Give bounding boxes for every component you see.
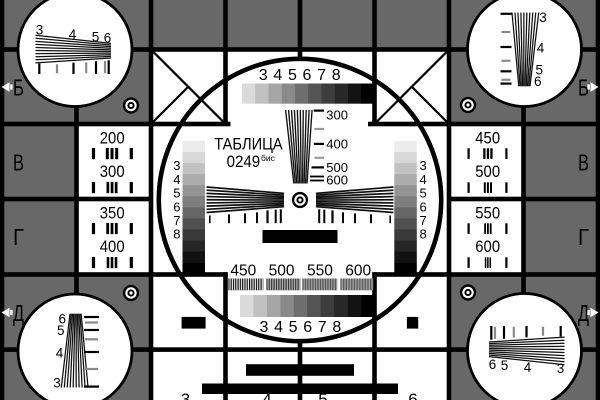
svg-text:550: 550 (475, 204, 500, 222)
svg-text:3: 3 (539, 10, 547, 25)
svg-text:6: 6 (303, 319, 312, 336)
svg-text:4: 4 (524, 360, 532, 375)
svg-text:3: 3 (557, 361, 565, 376)
svg-text:500: 500 (475, 163, 500, 181)
svg-text:3: 3 (181, 390, 190, 400)
svg-text:8: 8 (420, 227, 427, 242)
svg-text:350: 350 (100, 204, 125, 222)
svg-text:6: 6 (489, 357, 497, 372)
svg-text:7: 7 (317, 67, 326, 84)
svg-text:В: В (578, 149, 589, 175)
svg-text:4: 4 (273, 67, 282, 84)
svg-text:5: 5 (288, 67, 297, 84)
svg-text:450: 450 (230, 262, 256, 279)
svg-text:Д: Д (13, 300, 24, 326)
svg-text:бис: бис (261, 153, 276, 163)
svg-text:Б: Б (13, 74, 24, 100)
svg-text:8: 8 (332, 67, 341, 84)
svg-text:В: В (13, 149, 24, 175)
svg-text:6: 6 (58, 312, 66, 327)
svg-text:5: 5 (318, 390, 327, 400)
svg-text:4: 4 (56, 345, 64, 360)
svg-text:400: 400 (100, 238, 125, 256)
svg-text:Г: Г (13, 224, 24, 250)
svg-text:4: 4 (274, 319, 283, 336)
svg-text:600: 600 (475, 238, 500, 256)
svg-text:550: 550 (307, 262, 333, 279)
svg-text:ТАБЛИЦА: ТАБЛИЦА (214, 135, 283, 153)
svg-text:Б: Б (578, 74, 589, 100)
svg-text:4: 4 (537, 40, 545, 55)
svg-text:4: 4 (262, 390, 271, 400)
svg-text:200: 200 (100, 129, 125, 147)
svg-text:Г: Г (578, 224, 589, 250)
svg-text:7: 7 (318, 319, 327, 336)
svg-text:3: 3 (260, 319, 269, 336)
svg-text:5: 5 (501, 358, 509, 373)
svg-text:500: 500 (269, 262, 295, 279)
svg-text:3: 3 (53, 376, 61, 391)
svg-text:5: 5 (289, 319, 298, 336)
svg-text:3: 3 (259, 67, 268, 84)
svg-text:600: 600 (326, 173, 348, 188)
svg-text:600: 600 (345, 262, 371, 279)
svg-text:0249: 0249 (227, 152, 261, 171)
svg-text:300: 300 (326, 107, 348, 122)
svg-text:6: 6 (408, 390, 417, 400)
svg-text:8: 8 (173, 227, 180, 242)
svg-text:450: 450 (475, 129, 500, 147)
svg-text:6: 6 (534, 74, 542, 89)
svg-text:6: 6 (303, 67, 312, 84)
svg-text:400: 400 (326, 137, 348, 152)
svg-text:300: 300 (100, 163, 125, 181)
